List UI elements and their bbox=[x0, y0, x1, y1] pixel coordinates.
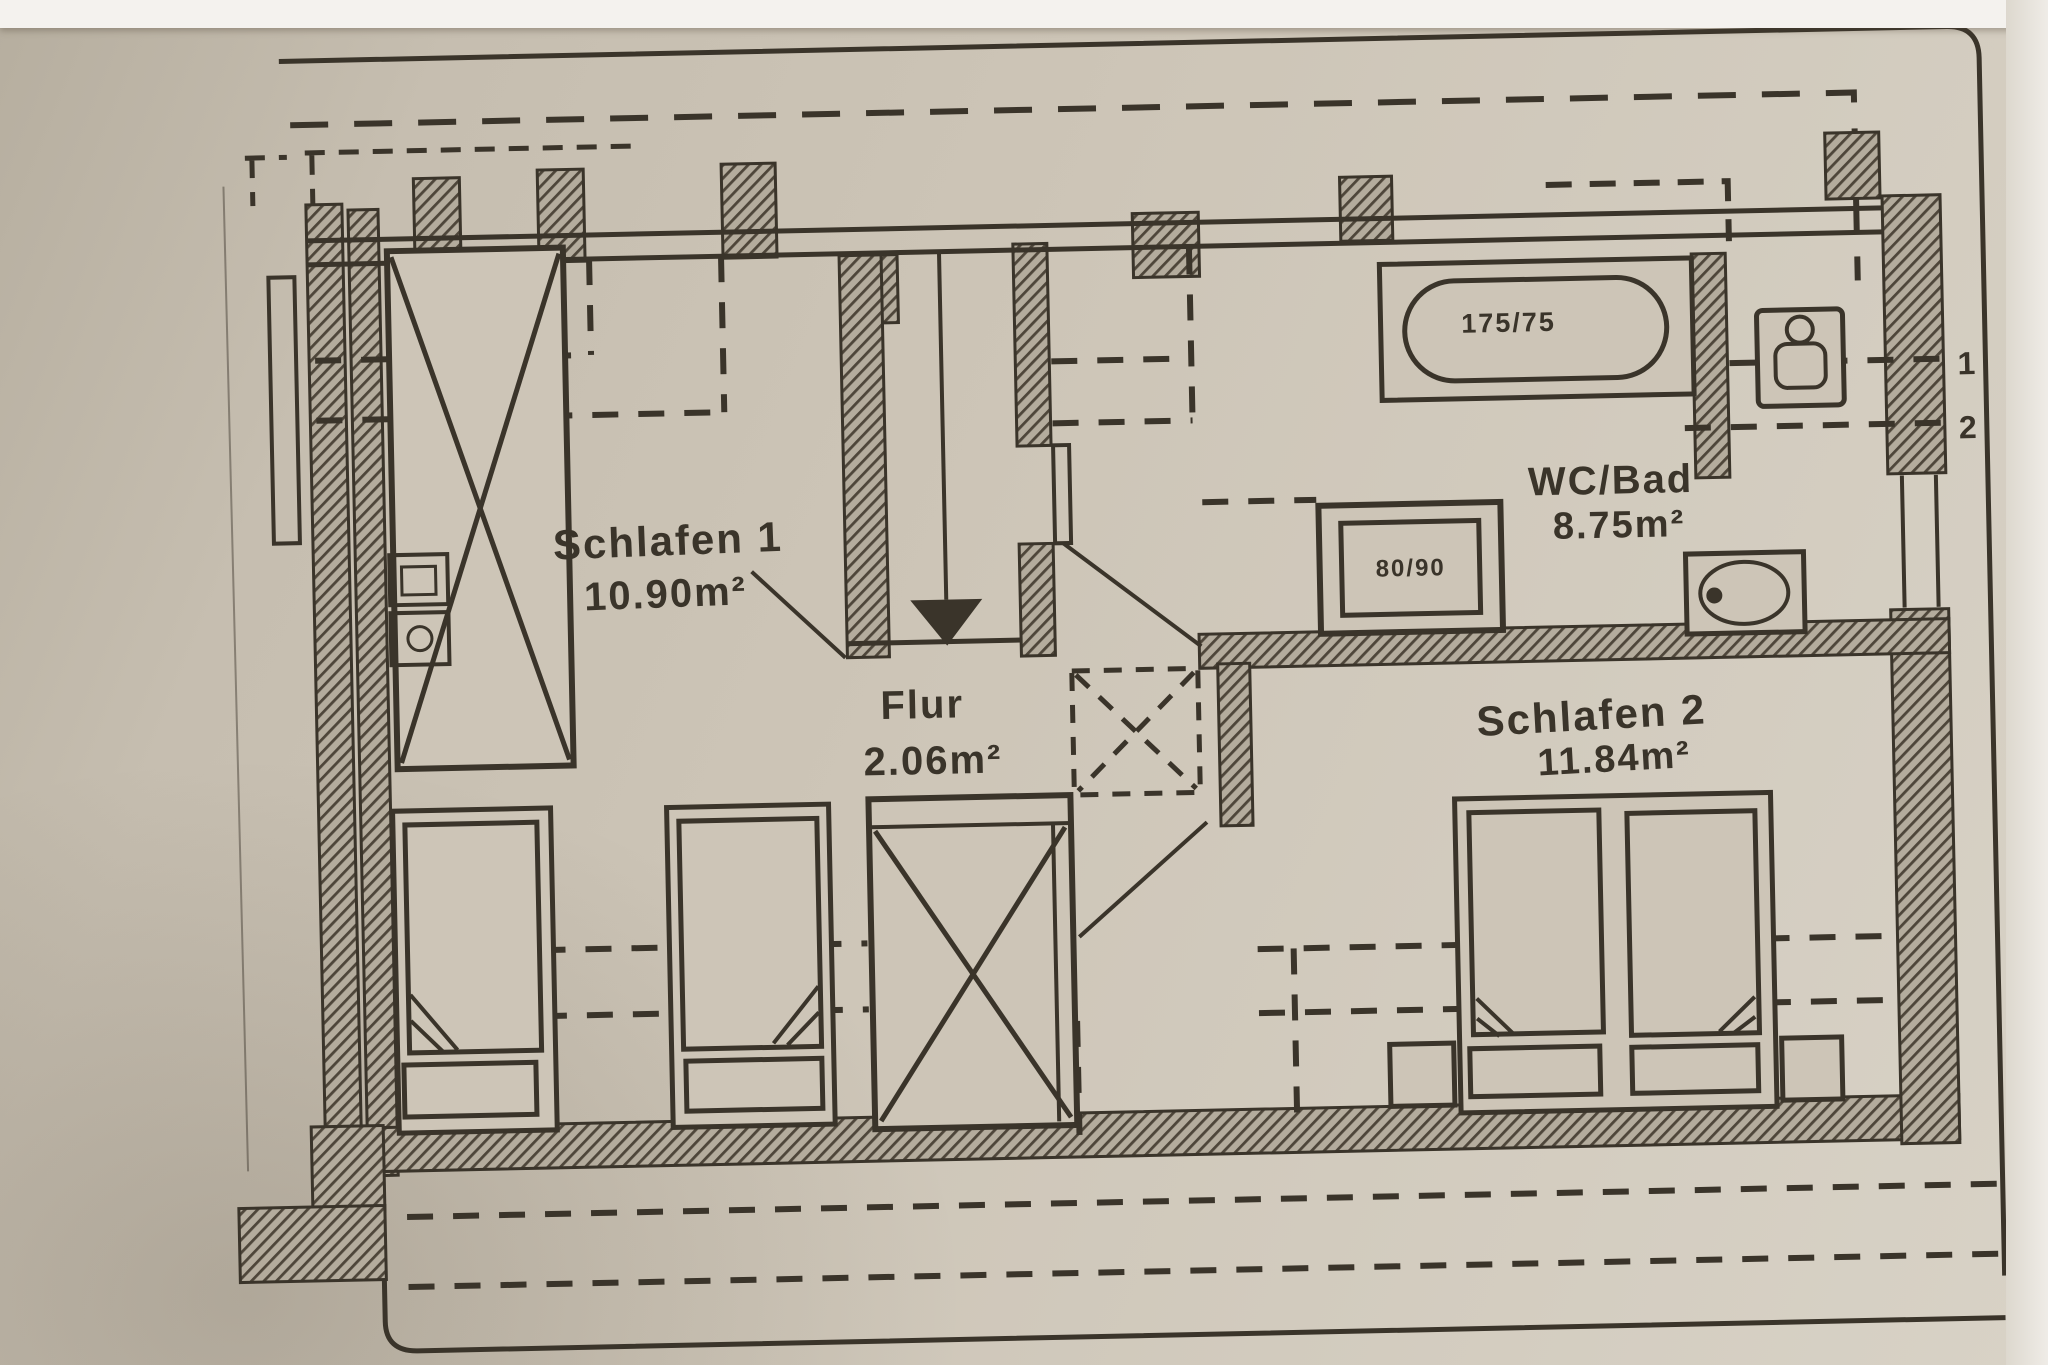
schlafen1-beds bbox=[393, 802, 836, 1133]
right-marker-1: 1 bbox=[1957, 345, 1978, 381]
schlafen2-door-swing bbox=[1077, 822, 1209, 937]
dash-s1-upper-v bbox=[589, 259, 591, 355]
bed1-bench bbox=[404, 1062, 537, 1117]
bath-door-swing bbox=[1063, 540, 1201, 649]
dash-s2-vertical bbox=[1294, 948, 1298, 1122]
floor-plan: Schlafen 1 10.90m² Flur 2.06m² WC/Bad 8.… bbox=[215, 26, 2006, 1355]
wall-right-lower bbox=[1891, 609, 1960, 1144]
flur-schlafen2-divider-wall bbox=[1218, 663, 1253, 826]
wall-bottom-left-corner bbox=[311, 1126, 385, 1213]
bed2-mattress bbox=[679, 818, 822, 1049]
flur-left-wall bbox=[839, 255, 889, 658]
shower-size-label: 80/90 bbox=[1375, 554, 1446, 582]
top-wall-pier-6 bbox=[1825, 132, 1880, 199]
stair-direction-line bbox=[939, 254, 946, 600]
photo-page-edge-right bbox=[2006, 0, 2048, 1365]
room-area-flur: 2.06m² bbox=[863, 737, 1003, 784]
photo-page-edge-top bbox=[0, 0, 2048, 28]
double-bed-mattress-right bbox=[1627, 811, 1760, 1036]
dash-bath-shower bbox=[1202, 500, 1316, 502]
bath-bottom-wall bbox=[1199, 619, 1950, 669]
bath-toilet-partition bbox=[1691, 253, 1730, 478]
flur-right-wall-lower bbox=[1019, 543, 1055, 656]
room-label-flur: Flur bbox=[880, 682, 964, 728]
bathtub-size-label: 175/75 bbox=[1461, 307, 1556, 339]
bed2-bench bbox=[686, 1058, 823, 1111]
dash-bath-left-2 bbox=[1053, 420, 1193, 423]
wall-right-upper bbox=[1882, 195, 1946, 474]
nightstand-left bbox=[1390, 1043, 1455, 1106]
scanned-floor-plan-page: Schlafen 1 10.90m² Flur 2.06m² WC/Bad 8.… bbox=[0, 0, 2048, 1365]
right-marker-2: 2 bbox=[1958, 409, 1979, 445]
floor-plan-svg: Schlafen 1 10.90m² Flur 2.06m² WC/Bad 8.… bbox=[0, 0, 2048, 1365]
room-area-schlafen2: 11.84m² bbox=[1536, 734, 1692, 785]
dash-eave-lower bbox=[409, 1254, 1999, 1287]
roof-dashed-bracket-left-1 bbox=[245, 157, 288, 206]
double-bed-mattress-left bbox=[1469, 810, 1604, 1035]
dash-s1-lower-v bbox=[721, 256, 724, 412]
bathroom-fixtures bbox=[1313, 255, 1849, 642]
top-wall-pier-3 bbox=[721, 163, 777, 258]
dash-bath-left-v bbox=[1189, 248, 1193, 420]
right-window-line-1 bbox=[1902, 476, 1905, 608]
nightstand-right bbox=[1782, 1037, 1843, 1100]
room-label-schlafen1: Schlafen 1 bbox=[552, 513, 784, 569]
bed1-mattress bbox=[405, 822, 542, 1053]
room-area-wcbad: 8.75m² bbox=[1552, 503, 1685, 548]
toilet-icon bbox=[1756, 309, 1844, 407]
room-label-wcbad: WC/Bad bbox=[1527, 457, 1693, 504]
wall-bottom-left-foot bbox=[239, 1206, 387, 1283]
bed-bench-right bbox=[1632, 1045, 1759, 1094]
bed-bench-left bbox=[1470, 1046, 1601, 1097]
flur-right-wall-upper bbox=[1013, 243, 1051, 446]
top-wall-pier-5 bbox=[1339, 176, 1392, 241]
left-exterior-post bbox=[268, 277, 300, 543]
dash-bath-left-1 bbox=[1051, 358, 1191, 361]
right-window-line-2 bbox=[1936, 475, 1939, 607]
schlafen1-door-swing bbox=[752, 570, 846, 660]
room-area-schlafen1: 10.90m² bbox=[583, 569, 748, 619]
schlafen2-bed bbox=[1385, 791, 1843, 1114]
bath-door-leaf bbox=[1053, 445, 1071, 543]
lower-eave-boundary bbox=[382, 1142, 2005, 1352]
page-fold-line bbox=[223, 187, 248, 1172]
skylight-dashed-box bbox=[1072, 668, 1201, 795]
dash-eave-upper bbox=[407, 1184, 1997, 1217]
